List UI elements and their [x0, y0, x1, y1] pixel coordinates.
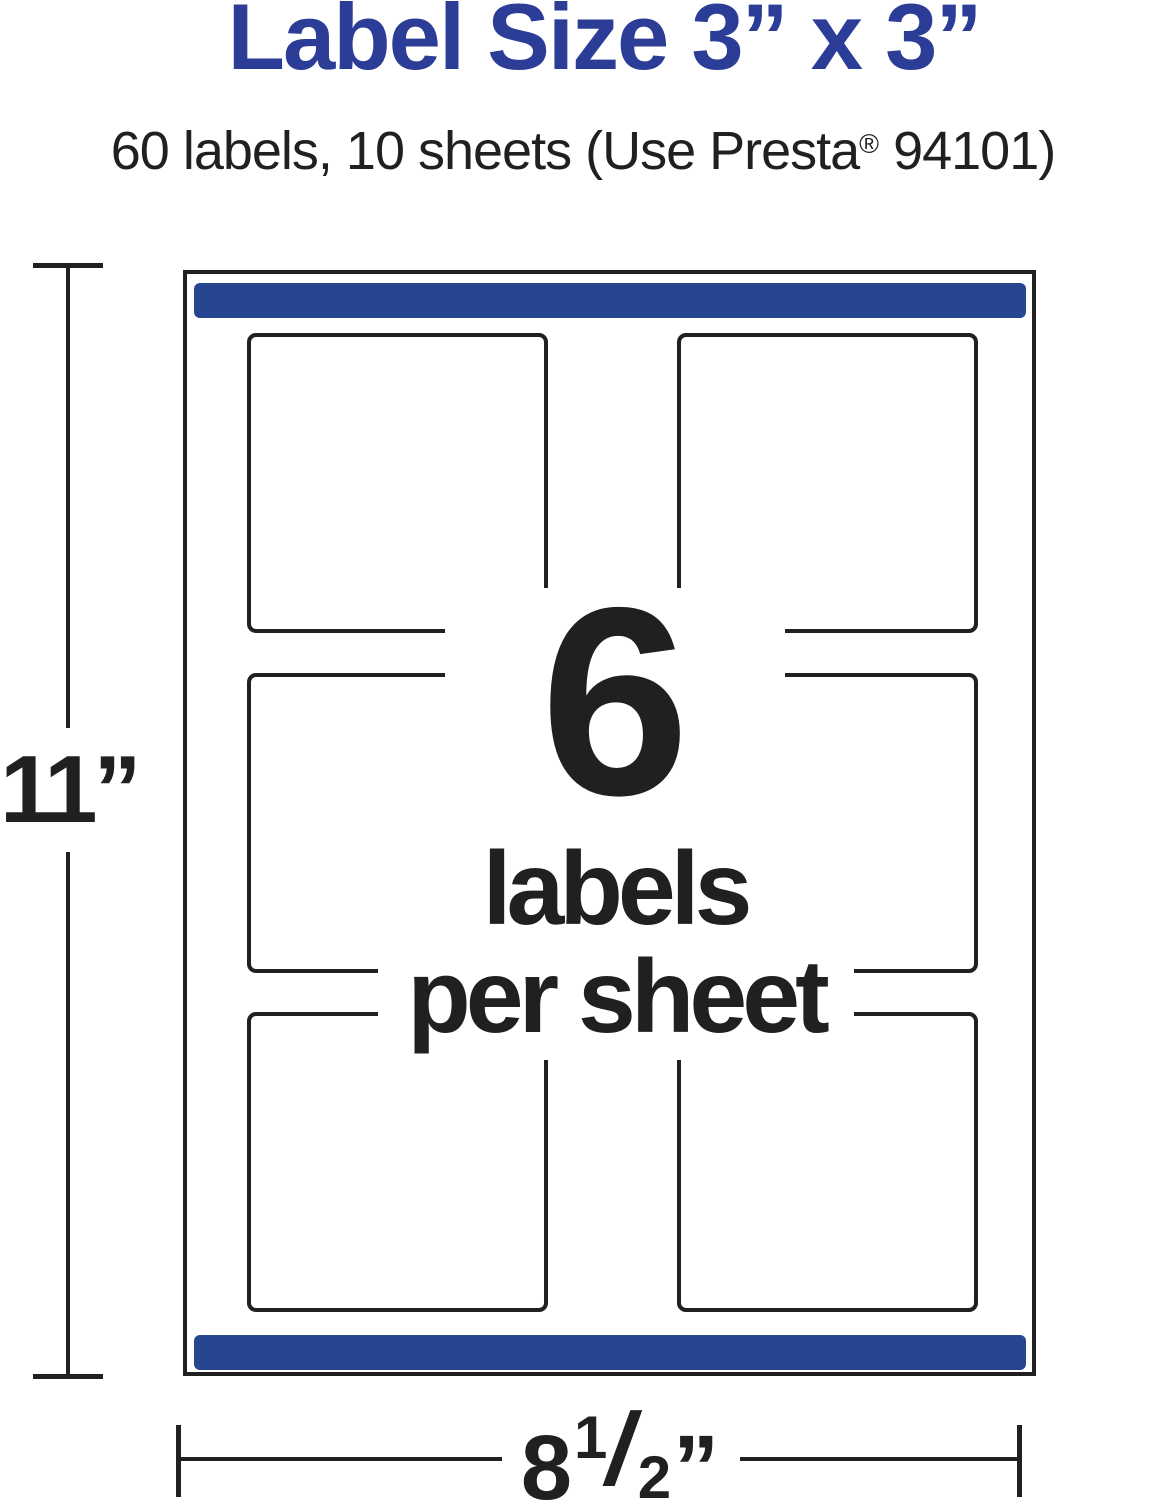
width-dimension-line-left — [178, 1457, 502, 1461]
width-fraction-numerator: 1 — [574, 1398, 607, 1468]
height-dimension-line-lower — [66, 852, 70, 1377]
per-sheet-word: per sheet — [378, 938, 854, 1060]
width-dimension-right-tick — [1017, 1425, 1022, 1497]
width-fraction-denominator: 2 — [638, 1398, 671, 1500]
width-dimension-line-right — [740, 1457, 1020, 1461]
labels-per-sheet-count: 6 — [445, 574, 785, 829]
height-dimension-line-upper — [66, 265, 70, 728]
height-dimension-top-cap — [33, 263, 103, 268]
height-dimension-label: 11” — [0, 738, 143, 842]
label-sheet-diagram: Label Size 3” x 3” 60 labels, 10 sheets … — [0, 0, 1166, 1500]
width-dimension-left-tick — [176, 1425, 181, 1497]
labels-word: labels — [445, 839, 785, 939]
height-dimension-bottom-cap — [33, 1374, 103, 1379]
width-dimension-label: 8 1 / 2 ” — [500, 1398, 740, 1500]
width-unit-mark: ” — [673, 1398, 719, 1500]
width-whole-number: 8 — [521, 1398, 572, 1500]
center-text-block: 6 labels — [445, 588, 785, 940]
